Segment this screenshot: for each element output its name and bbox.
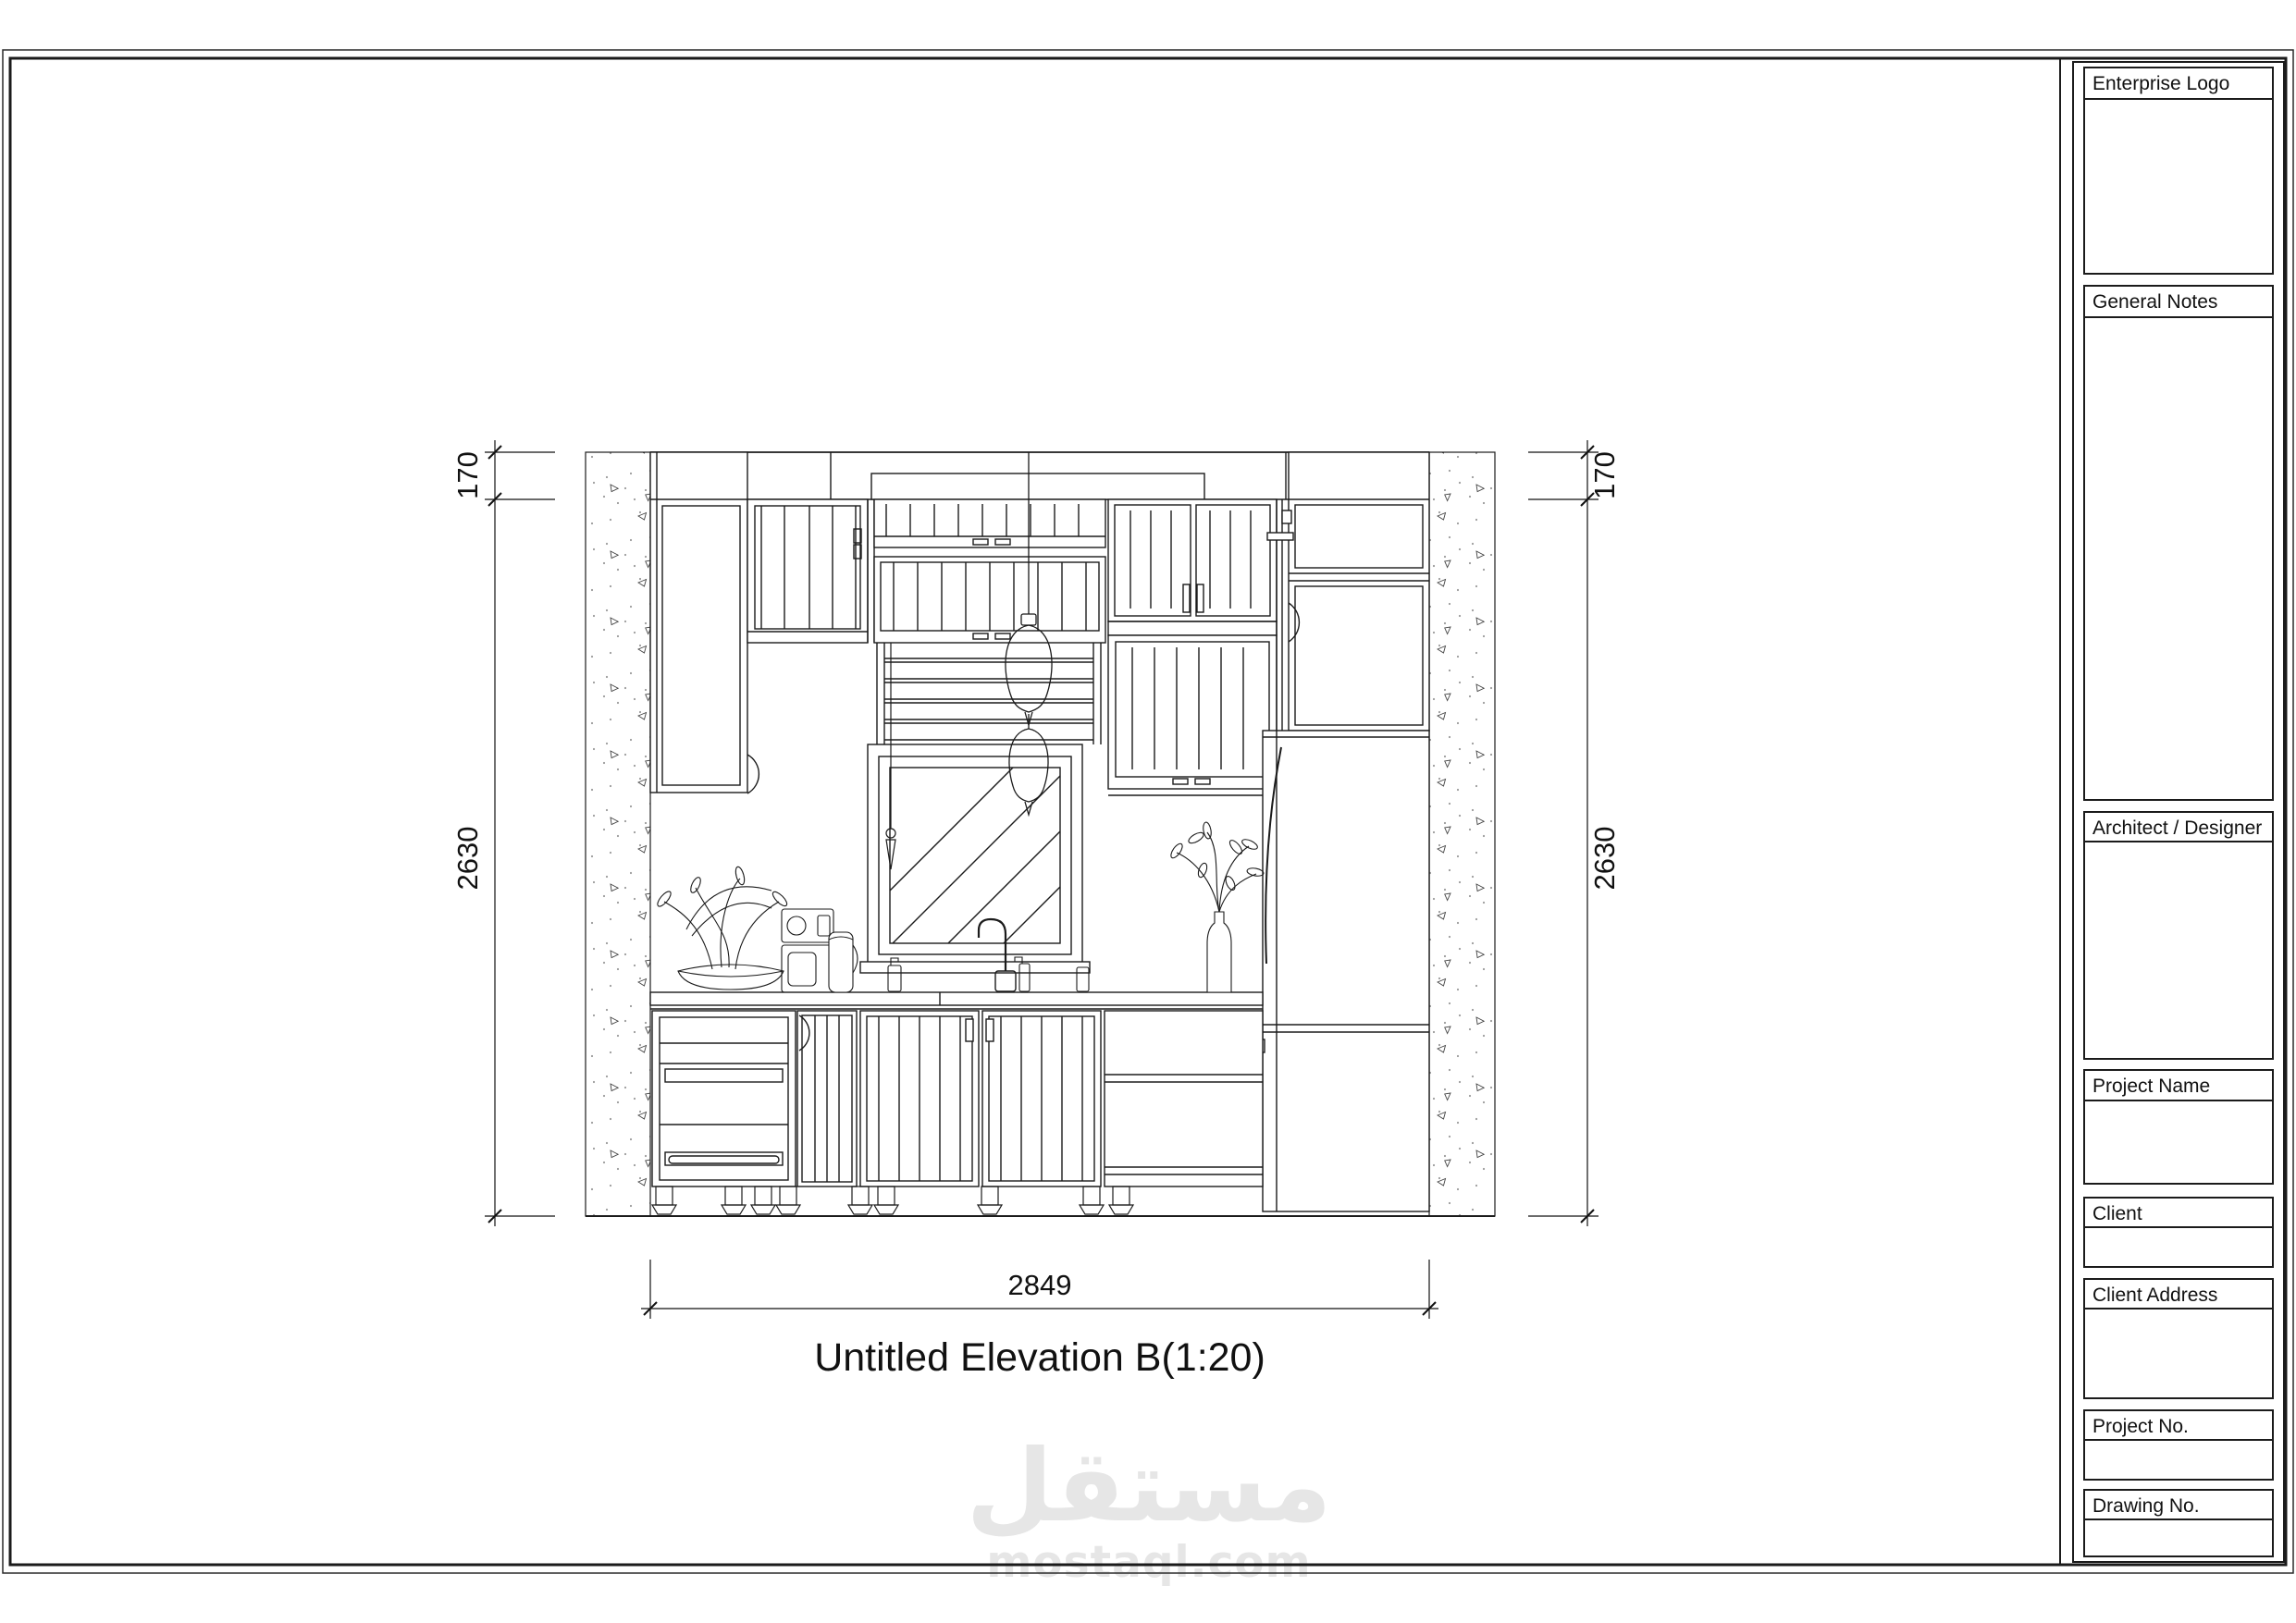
kettle bbox=[829, 932, 853, 992]
valance bbox=[871, 473, 1204, 499]
watermark-arabic-text: مستقل bbox=[945, 1435, 1352, 1539]
titleblock-field-project-no bbox=[2083, 1439, 2274, 1481]
base-narrow-door-unit bbox=[797, 1011, 857, 1187]
titleblock-header-general-notes: General Notes bbox=[2083, 285, 2274, 318]
cabinet-legs bbox=[652, 1187, 1133, 1214]
fridge-handle-arc bbox=[1265, 747, 1281, 964]
titleblock-field-general-notes bbox=[2083, 316, 2274, 801]
counter-appliance bbox=[782, 909, 858, 992]
view-title: Untitled Elevation B(1:20) bbox=[814, 1335, 1265, 1380]
roman-shade bbox=[877, 643, 1101, 744]
dim-soffit-right: 170 bbox=[1588, 451, 1621, 499]
titleblock-header-architect-designer: Architect / Designer bbox=[2083, 811, 2274, 842]
window-glass-hatch bbox=[777, 763, 1184, 1003]
decorative-arrangement bbox=[656, 866, 789, 990]
titleblock-header-client: Client bbox=[2083, 1197, 2274, 1228]
left-wall-section bbox=[586, 452, 650, 1216]
watermark-url-text: mostaql.com bbox=[945, 1539, 1352, 1587]
upper-cabinet-center bbox=[874, 499, 1105, 643]
window-sill bbox=[860, 962, 1090, 973]
drawing-sheet: { "page": { "background": "#ffffff", "li… bbox=[0, 0, 2296, 1623]
refrigerator bbox=[1255, 731, 1429, 1211]
right-wall-section bbox=[1429, 452, 1495, 1216]
titleblock-header-drawing-no: Drawing No. bbox=[2083, 1489, 2274, 1520]
pendant-lights bbox=[1006, 452, 1052, 815]
titleblock-field-client bbox=[2083, 1226, 2274, 1268]
base-open-shelf-unit bbox=[652, 1011, 796, 1187]
titleblock-header-project-name: Project Name bbox=[2083, 1069, 2274, 1101]
dim-height-left: 2630 bbox=[451, 827, 484, 891]
soffit-band bbox=[650, 452, 1429, 499]
titleblock-field-client-address bbox=[2083, 1308, 2274, 1399]
titleblock-field-architect-designer bbox=[2083, 841, 2274, 1060]
vase-with-branches bbox=[1169, 821, 1265, 992]
titleblock-header-enterprise-logo: Enterprise Logo bbox=[2083, 67, 2274, 100]
titleblock-field-drawing-no bbox=[2083, 1518, 2274, 1557]
sink-faucet bbox=[979, 919, 1016, 991]
dim-height-right: 2630 bbox=[1588, 827, 1621, 891]
dim-soffit-left: 170 bbox=[451, 451, 484, 499]
soap-dispenser-left bbox=[888, 958, 901, 991]
page-border bbox=[3, 50, 2293, 1573]
left-tall-cabinet bbox=[650, 452, 759, 793]
dim-width-bottom: 2849 bbox=[1008, 1269, 1072, 1301]
upper-cabinet-left bbox=[747, 499, 868, 643]
window bbox=[777, 744, 1184, 1003]
soap-pump-right bbox=[1015, 957, 1089, 991]
titleblock-field-project-name bbox=[2083, 1100, 2274, 1185]
sink-base-cabinet bbox=[860, 1011, 1101, 1187]
fridge-surround-cabinet bbox=[1267, 452, 1429, 731]
watermark: مستقل mostaql.com bbox=[945, 1435, 1352, 1587]
titleblock-header-client-address: Client Address bbox=[2083, 1278, 2274, 1309]
titleblock-field-enterprise-logo bbox=[2083, 98, 2274, 275]
base-drawer-unit bbox=[1105, 1011, 1263, 1187]
titleblock-header-project-no: Project No. bbox=[2083, 1409, 2274, 1441]
upper-cabinet-right bbox=[1108, 499, 1277, 795]
elevation-drawing: 170 2630 170 2630 2849 Untitled Elevatio… bbox=[0, 0, 2296, 1623]
dimension-lines bbox=[485, 440, 1599, 1319]
blind-cord bbox=[886, 643, 895, 869]
countertop bbox=[650, 992, 1263, 1009]
